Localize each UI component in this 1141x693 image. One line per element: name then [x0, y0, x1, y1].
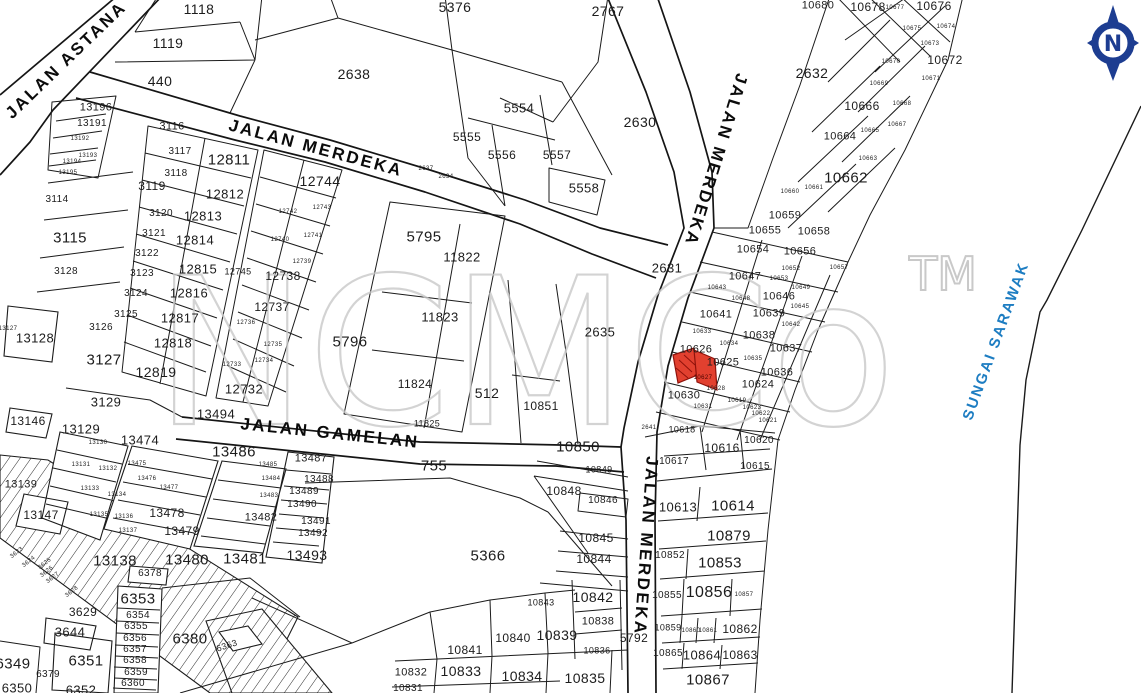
lot-label-12738: 12738 [265, 270, 300, 282]
lot-label-13133: 13133 [81, 486, 100, 492]
lot-label-10658: 10658 [798, 227, 831, 238]
lot-label-13494: 13494 [197, 408, 235, 421]
lot-label-13474: 13474 [121, 434, 159, 447]
lot-label-6356: 6356 [123, 634, 147, 644]
lot-label-13490: 13490 [287, 500, 317, 510]
lot-label-10833: 10833 [441, 664, 482, 678]
lot-label-10848: 10848 [546, 485, 581, 497]
lot-label-6350: 6350 [2, 682, 33, 693]
lot-label-6354: 6354 [126, 611, 150, 621]
lot-label-13480: 13480 [165, 553, 209, 568]
lot-label-3629: 3629 [69, 606, 97, 618]
lot-label-6349: 6349 [0, 657, 30, 672]
lot-label-13488: 13488 [304, 475, 334, 485]
lot-label-12744: 12744 [300, 174, 341, 188]
road-label-3: JALAN MERDEKA [631, 456, 661, 637]
lot-label-2635: 2635 [585, 326, 616, 339]
lot-label-13481: 13481 [223, 552, 267, 567]
lot-label-10673: 10673 [921, 41, 940, 47]
lot-label-12741: 12741 [304, 233, 323, 239]
lot-label-2637: 2637 [419, 166, 434, 172]
lot-label-3118: 3118 [164, 169, 187, 179]
lot-label-3623: 3623 [9, 546, 24, 560]
lot-label-13478: 13478 [149, 507, 184, 519]
lot-label-3119: 3119 [138, 180, 165, 192]
lot-label-10855: 10855 [652, 591, 682, 601]
lot-label-11823: 11823 [421, 311, 458, 324]
lot-label-5554: 5554 [504, 102, 535, 115]
lot-label-3128: 3128 [54, 267, 78, 277]
lot-label-13482: 13482 [245, 513, 278, 524]
lot-label-10840: 10840 [495, 632, 530, 644]
lot-label-12813: 12813 [184, 210, 222, 223]
lot-label-13483: 13483 [260, 493, 279, 499]
lot-label-10838: 10838 [582, 617, 615, 628]
lot-label-6363: 6363 [215, 638, 238, 653]
lot-label-6360: 6360 [121, 679, 145, 689]
lot-label-10850: 10850 [556, 440, 600, 455]
lot-label-10634: 10634 [720, 341, 739, 347]
lot-label-13493: 13493 [287, 548, 328, 562]
lot-label-13132: 13132 [99, 466, 118, 472]
lot-label-10832: 10832 [395, 668, 428, 679]
lot-label-12743: 12743 [313, 205, 332, 211]
lot-label-10641: 10641 [700, 310, 733, 321]
lot-label-2638: 2638 [338, 67, 371, 81]
lot-label-13192: 13192 [71, 136, 90, 142]
lot-label-13134: 13134 [108, 492, 127, 498]
lot-label-10835: 10835 [565, 671, 606, 685]
lot-label-10636: 10636 [761, 368, 794, 379]
lot-label-10666: 10666 [844, 100, 879, 112]
lot-label-10639: 10639 [753, 309, 786, 320]
lot-label-10676: 10676 [916, 0, 951, 12]
lot-label-12739: 12739 [293, 259, 312, 265]
lot-label-3115: 3115 [53, 231, 87, 246]
lot-label-3124: 3124 [124, 289, 148, 299]
lot-label-12814: 12814 [176, 234, 214, 247]
lot-label-10647: 10647 [729, 272, 762, 283]
lot-label-13139: 13139 [5, 480, 38, 491]
lot-label-10615: 10615 [740, 462, 770, 472]
lot-label-12815: 12815 [179, 263, 217, 276]
lot-label-13477: 13477 [160, 485, 179, 491]
lot-label-10633: 10633 [693, 329, 712, 335]
lot-label-10836: 10836 [583, 647, 610, 656]
lot-label-2767: 2767 [592, 4, 625, 18]
lot-label-2641: 2641 [642, 425, 657, 431]
lot-label-10637: 10637 [770, 344, 803, 355]
lot-label-10655: 10655 [749, 226, 782, 237]
lot-label-13491: 13491 [301, 517, 331, 527]
lot-label-2630: 2630 [624, 115, 657, 129]
lot-label-10834: 10834 [502, 669, 543, 683]
lot-label-10626: 10626 [680, 345, 713, 356]
lot-label-13489: 13489 [289, 487, 319, 497]
lot-label-3126: 3126 [89, 323, 113, 333]
lot-label-1119: 1119 [153, 36, 184, 50]
lot-label-6351: 6351 [69, 654, 104, 669]
cadastral-map[interactable]: NCMCo TM N 11181119440131961319113192131… [0, 0, 1141, 693]
lot-label-10865: 10865 [653, 649, 683, 659]
lot-label-10864: 10864 [683, 649, 721, 662]
label-layer: 1118111944013196131911319213193131941319… [0, 0, 1141, 693]
lot-label-512: 512 [475, 386, 500, 400]
lot-label-13129: 13129 [62, 423, 100, 436]
lot-label-13136: 13136 [115, 514, 134, 520]
lot-label-10853: 10853 [698, 556, 742, 571]
lot-label-6353: 6353 [121, 592, 156, 607]
lot-label-10672: 10672 [927, 54, 962, 66]
lot-label-10642: 10642 [782, 322, 801, 328]
lot-label-3116: 3116 [159, 122, 184, 133]
lot-label-13147: 13147 [23, 509, 58, 521]
lot-label-10663: 10663 [859, 156, 878, 162]
lot-label-10620: 10620 [744, 436, 774, 446]
lot-label-11824: 11824 [398, 378, 432, 390]
lot-label-10857: 10857 [735, 592, 754, 598]
lot-label-12733: 12733 [223, 362, 242, 368]
lot-label-10645: 10645 [791, 304, 810, 310]
lot-label-10863: 10863 [722, 649, 757, 661]
lot-label-3644: 3644 [55, 626, 86, 639]
lot-label-12732: 12732 [225, 383, 263, 396]
lot-label-5557: 5557 [543, 149, 571, 161]
lot-label-11822: 11822 [443, 251, 480, 264]
road-label-2: JALAN MERDEKA [682, 72, 751, 249]
lot-label-12816: 12816 [170, 287, 208, 300]
lot-label-13487: 13487 [295, 454, 328, 465]
lot-label-10839: 10839 [537, 628, 578, 642]
lot-label-10628: 10628 [707, 386, 726, 392]
lot-label-10671: 10671 [922, 76, 941, 82]
lot-label-10613: 10613 [659, 501, 697, 514]
lot-label-10616: 10616 [704, 442, 739, 454]
lot-label-10668: 10668 [893, 101, 912, 107]
lot-label-440: 440 [148, 74, 173, 88]
lot-label-13131: 13131 [72, 462, 91, 468]
lot-label-12737: 12737 [254, 301, 289, 313]
lot-label-10851: 10851 [523, 400, 558, 412]
lot-label-13484: 13484 [262, 476, 281, 482]
road-label-1: JALAN MERDEKA [227, 117, 405, 180]
lot-label-3123: 3123 [130, 269, 154, 279]
lot-label-13127: 13127 [0, 326, 17, 332]
lot-label-13146: 13146 [10, 415, 45, 427]
lot-label-5795: 5795 [407, 230, 442, 245]
lot-label-10664: 10664 [824, 132, 857, 143]
lot-label-10852: 10852 [655, 551, 685, 561]
lot-label-5366: 5366 [471, 549, 506, 564]
lot-label-5558: 5558 [569, 182, 600, 195]
lot-label-12819: 12819 [136, 365, 177, 379]
lot-label-13128: 13128 [16, 332, 54, 345]
lot-label-6357: 6357 [123, 645, 147, 655]
lot-label-10631: 10631 [694, 404, 713, 410]
lot-label-10643: 10643 [708, 285, 727, 291]
lot-label-13137: 13137 [119, 528, 138, 534]
lot-label-10625: 10625 [707, 358, 740, 369]
river-label: SUNGAI SARAWAK [960, 260, 1031, 422]
lot-label-10844: 10844 [576, 553, 611, 565]
lot-label-5555: 5555 [453, 131, 481, 143]
lot-label-755: 755 [421, 459, 447, 474]
lot-label-13196: 13196 [80, 103, 113, 114]
lot-label-10879: 10879 [707, 529, 751, 544]
lot-label-11825: 11825 [414, 420, 440, 429]
lot-label-10649: 10649 [792, 285, 811, 291]
lot-label-10661: 10661 [805, 185, 824, 191]
lot-label-12812: 12812 [206, 188, 244, 201]
lot-label-13130: 13130 [89, 440, 108, 446]
lot-label-13486: 13486 [212, 445, 256, 460]
lot-label-10654: 10654 [737, 245, 770, 256]
lot-label-13135: 13135 [90, 512, 109, 518]
lot-label-13138: 13138 [93, 554, 137, 569]
lot-label-10659: 10659 [769, 211, 802, 222]
lot-label-13485: 13485 [259, 462, 278, 468]
lot-label-10662: 10662 [824, 171, 868, 186]
lot-label-3120: 3120 [149, 209, 173, 219]
lot-label-1118: 1118 [184, 2, 215, 16]
lot-label-6352: 6352 [66, 684, 97, 693]
lot-label-12736: 12736 [237, 320, 256, 326]
lot-label-13475: 13475 [128, 461, 147, 467]
lot-label-10624: 10624 [742, 380, 775, 391]
lot-label-10656: 10656 [784, 247, 817, 258]
lot-label-10619: 10619 [728, 398, 747, 404]
lot-label-10862: 10862 [722, 623, 757, 635]
lot-label-12742: 12742 [279, 209, 298, 215]
lot-label-12817: 12817 [161, 312, 199, 325]
lot-label-10842: 10842 [573, 590, 614, 604]
lot-label-12811: 12811 [208, 153, 251, 168]
lot-label-10674: 10674 [937, 24, 956, 30]
lot-label-10614: 10614 [711, 499, 755, 514]
lot-label-10669: 10669 [870, 81, 889, 87]
lot-label-10670: 10670 [882, 59, 901, 65]
lot-label-3121: 3121 [142, 229, 166, 239]
lot-label-5556: 5556 [488, 149, 516, 161]
lot-label-10677: 10677 [886, 5, 905, 11]
lot-label-10648: 10648 [732, 296, 751, 302]
lot-label-6358: 6358 [123, 656, 147, 666]
lot-label-3114: 3114 [45, 195, 68, 205]
lot-label-10841: 10841 [447, 644, 482, 656]
lot-label-12740: 12740 [271, 237, 290, 243]
lot-label-10667: 10667 [888, 122, 907, 128]
lot-label-13191: 13191 [77, 119, 107, 129]
lot-label-6359: 6359 [124, 668, 148, 678]
lot-label-3129: 3129 [91, 396, 122, 409]
lot-label-10843: 10843 [527, 599, 554, 608]
lot-label-6378: 6378 [138, 569, 162, 579]
lot-label-13492: 13492 [298, 529, 328, 539]
lot-label-13476: 13476 [138, 476, 157, 482]
lot-label-10652: 10652 [782, 266, 801, 272]
lot-label-13194: 13194 [63, 159, 82, 165]
lot-label-3117: 3117 [168, 147, 191, 157]
lot-label-10653: 10653 [770, 276, 789, 282]
lot-label-10657: 10657 [830, 265, 849, 271]
lot-label-6379: 6379 [36, 670, 60, 680]
lot-label-10665: 10665 [861, 128, 880, 134]
lot-label-12734: 12734 [255, 358, 274, 364]
lot-label-12818: 12818 [154, 337, 192, 350]
lot-label-2632: 2632 [796, 66, 829, 80]
road-label-4: JALAN GAMELAN [240, 415, 421, 451]
lot-label-10678: 10678 [850, 1, 885, 13]
lot-label-13479: 13479 [164, 525, 199, 537]
lot-label-10635: 10635 [744, 356, 763, 362]
lot-label-10660: 10660 [781, 189, 800, 195]
lot-label-3624: 3624 [21, 555, 36, 569]
lot-label-10630: 10630 [668, 391, 701, 402]
lot-label-3125: 3125 [114, 310, 138, 320]
lot-label-10846: 10846 [588, 496, 618, 506]
lot-label-10617: 10617 [659, 457, 689, 467]
lot-label-13195: 13195 [59, 170, 78, 176]
lot-label-5796: 5796 [333, 335, 368, 350]
lot-label-3127: 3127 [87, 353, 122, 368]
lot-label-12745: 12745 [224, 268, 251, 277]
lot-label-10646: 10646 [763, 292, 796, 303]
lot-label-10867: 10867 [686, 673, 730, 688]
lot-label-2634: 2634 [439, 174, 454, 180]
lot-label-3122: 3122 [135, 249, 159, 259]
lot-label-6380: 6380 [173, 632, 208, 647]
lot-label-10621: 10621 [759, 418, 778, 424]
lot-label-3628: 3628 [64, 585, 79, 599]
lot-label-10675: 10675 [903, 26, 922, 32]
lot-label-12735: 12735 [264, 342, 283, 348]
lot-label-10618: 10618 [668, 426, 695, 435]
lot-label-5376: 5376 [439, 0, 472, 14]
lot-label-10638: 10638 [743, 331, 776, 342]
lot-label-10861: 10861 [699, 628, 718, 634]
lot-label-10622: 10622 [752, 411, 771, 417]
lot-label-10856: 10856 [686, 585, 733, 601]
lot-label-10831: 10831 [393, 684, 423, 693]
lot-label-10860: 10860 [682, 628, 701, 634]
lot-label-10849: 10849 [585, 466, 612, 475]
lot-label-10845: 10845 [578, 532, 613, 544]
lot-label-6355: 6355 [124, 622, 148, 632]
lot-label-10627: 10627 [694, 375, 713, 381]
lot-label-10859: 10859 [654, 624, 681, 633]
lot-label-2631: 2631 [652, 262, 683, 275]
lot-label-10680: 10680 [802, 1, 835, 12]
